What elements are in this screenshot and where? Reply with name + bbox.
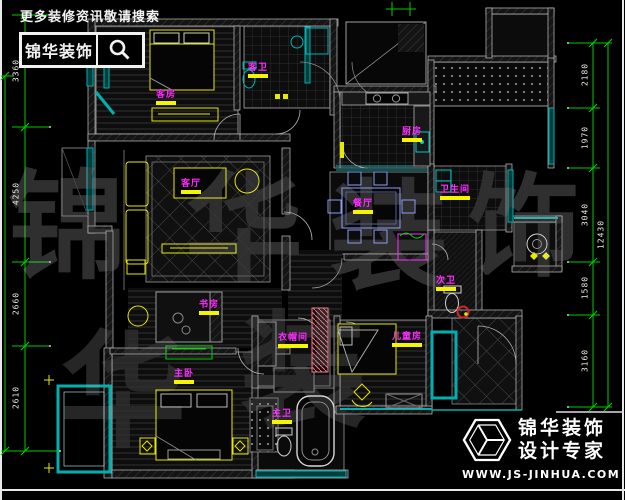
room-label-master-bedroom: 主卧 xyxy=(174,369,194,384)
room-label-text: 主卫 xyxy=(272,409,292,419)
room-label-text: 厨房 xyxy=(402,127,422,137)
room-label-bathroom: 卫生间 xyxy=(440,185,470,200)
room-label-text: 次卫 xyxy=(436,276,456,286)
room-label-text: 客厅 xyxy=(181,179,201,189)
room-label-guest-bathroom: 客卫 xyxy=(248,63,268,78)
search-caption: 更多装修资讯敬请搜索 xyxy=(20,6,160,25)
room-label-text: 主卧 xyxy=(174,369,194,379)
dim-right-5: 3160 xyxy=(581,339,590,383)
dim-left-4: 2610 xyxy=(12,376,21,420)
dim-right-1: 2180 xyxy=(581,53,590,97)
room-label-kids-room: 儿童房 xyxy=(392,332,422,347)
footer-brand-name: 锦华装饰 xyxy=(518,417,606,440)
magnifier-icon xyxy=(98,38,142,62)
room-label-guest-bedroom: 客房 xyxy=(156,90,176,105)
footer-brand-tagline: 设计专家 xyxy=(518,440,606,463)
room-label-second-bathroom: 次卫 xyxy=(436,276,456,291)
room-label-text: 卫生间 xyxy=(440,185,470,195)
room-label-text: 餐厅 xyxy=(353,199,373,209)
room-label-text: 客卫 xyxy=(248,63,268,73)
room-label-text: 儿童房 xyxy=(392,332,422,342)
footer-brand: 锦华装饰 设计专家 WWW.JS-JINHUA.COM xyxy=(462,414,624,481)
dim-right-3: 3040 xyxy=(581,193,590,237)
dim-left-3: 2660 xyxy=(12,282,21,326)
footer-website: WWW.JS-JINHUA.COM xyxy=(462,468,624,481)
dim-right-2: 1970 xyxy=(581,116,590,160)
room-label-study: 书房 xyxy=(199,300,219,315)
room-label-text: 客房 xyxy=(156,90,176,100)
dim-right-overall: 12430 xyxy=(597,213,606,257)
room-label-cloakroom: 衣帽间 xyxy=(278,333,308,348)
brand-logo: 锦华装饰 xyxy=(19,32,145,68)
room-label-text: 衣帽间 xyxy=(278,333,308,343)
dim-left-2: 4250 xyxy=(12,172,21,216)
room-label-master-bathroom: 主卫 xyxy=(272,409,292,424)
cube-logo-icon xyxy=(462,414,512,466)
brand-name: 锦华装饰 xyxy=(22,38,93,62)
dim-right-4: 1580 xyxy=(581,266,590,310)
room-label-text: 书房 xyxy=(199,300,219,310)
room-label-living-room: 客厅 xyxy=(181,179,201,194)
floorplan-image: 锦 华 装 饰 华 装 客房 客卫 厨房 客厅 餐厅 卫生间 次卫 书房 主卧 … xyxy=(0,0,625,500)
room-label-kitchen: 厨房 xyxy=(402,127,422,142)
room-label-dining-room: 餐厅 xyxy=(353,199,373,214)
